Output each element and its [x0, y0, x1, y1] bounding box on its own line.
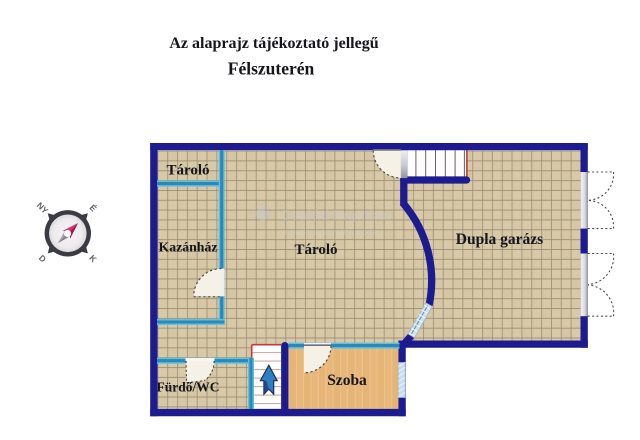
svg-text:Szoba: Szoba: [327, 372, 367, 389]
svg-text:Fürdő/WC: Fürdő/WC: [156, 380, 219, 395]
svg-text:Család Ingatlan: Család Ingatlan: [280, 207, 391, 224]
svg-text:D: D: [37, 253, 48, 264]
svg-text:Az alaprajz tájékoztató jelleg: Az alaprajz tájékoztató jellegű: [169, 35, 378, 52]
svg-text:ingatlanközvetítő iroda: ingatlanközvetítő iroda: [282, 227, 378, 238]
svg-text:K: K: [87, 253, 99, 265]
svg-text:Kazánház: Kazánház: [158, 240, 217, 255]
svg-text:Tároló: Tároló: [166, 163, 209, 179]
svg-text:É: É: [88, 202, 99, 213]
svg-text:Dupla garázs: Dupla garázs: [456, 231, 543, 248]
svg-text:Félszuterén: Félszuterén: [228, 59, 315, 79]
svg-text:Tároló: Tároló: [294, 242, 337, 258]
